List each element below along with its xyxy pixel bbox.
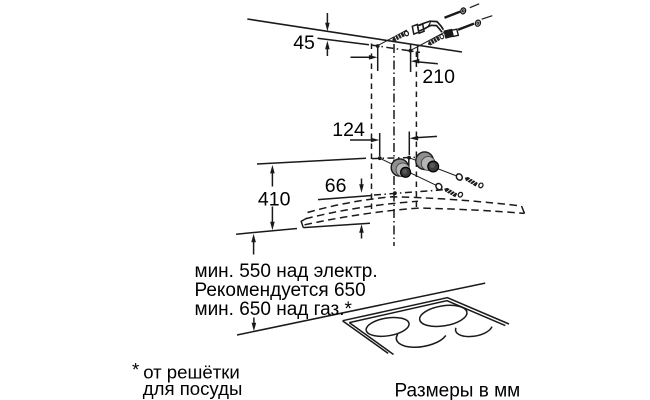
svg-text:Размеры в мм: Размеры в мм [395,381,521,400]
svg-text:124: 124 [332,119,365,141]
svg-text:для посуды: для посуды [143,378,243,399]
svg-text:*: * [132,359,139,380]
svg-text:45: 45 [293,32,315,54]
svg-text:66: 66 [325,175,347,197]
svg-text:210: 210 [422,66,455,88]
svg-text:410: 410 [258,188,291,210]
svg-text:мин. 650 над газ.*: мин. 650 над газ.* [195,299,353,320]
svg-text:Рекомендуется 650: Рекомендуется 650 [195,280,366,301]
